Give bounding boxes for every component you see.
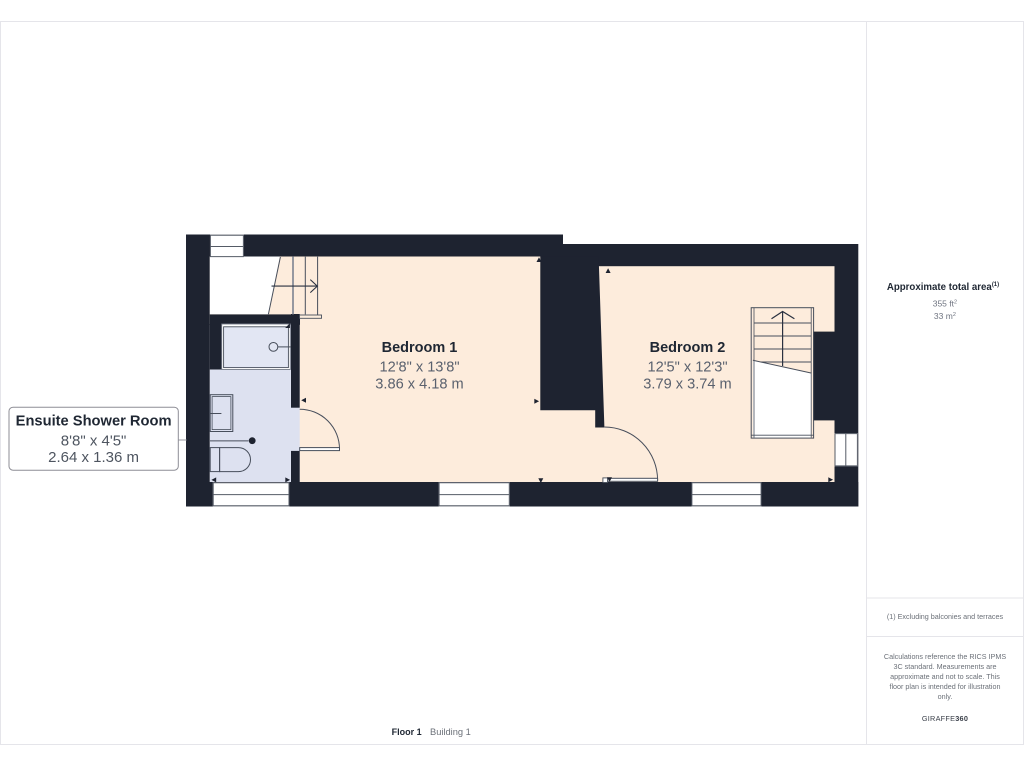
svg-text:floor plan is intended for ill: floor plan is intended for illustration bbox=[889, 682, 1000, 691]
svg-text:33 m2: 33 m2 bbox=[934, 311, 956, 321]
svg-text:GIRAFFE360: GIRAFFE360 bbox=[922, 714, 968, 723]
svg-text:Bedroom 2: Bedroom 2 bbox=[650, 340, 726, 356]
svg-text:12'8" x 13'8": 12'8" x 13'8" bbox=[379, 360, 459, 376]
svg-text:Ensuite Shower Room: Ensuite Shower Room bbox=[16, 414, 172, 430]
svg-text:Building 1: Building 1 bbox=[430, 727, 471, 737]
svg-text:approximate and not to scale.: approximate and not to scale. This bbox=[890, 672, 1000, 681]
svg-text:(1) Excluding balconies and te: (1) Excluding balconies and terraces bbox=[887, 612, 1004, 621]
svg-text:3.79 x 3.74 m: 3.79 x 3.74 m bbox=[643, 377, 731, 393]
svg-text:3C standard. Measurements are: 3C standard. Measurements are bbox=[893, 662, 996, 671]
svg-text:Approximate total area(1): Approximate total area(1) bbox=[887, 282, 999, 293]
svg-text:8'8" x 4'5": 8'8" x 4'5" bbox=[61, 433, 127, 450]
svg-text:2.64 x 1.36 m: 2.64 x 1.36 m bbox=[48, 449, 139, 466]
svg-text:Floor 1: Floor 1 bbox=[392, 727, 422, 737]
svg-text:12'5" x 12'3": 12'5" x 12'3" bbox=[647, 360, 727, 376]
svg-text:355 ft2: 355 ft2 bbox=[933, 299, 957, 309]
svg-text:only.: only. bbox=[938, 692, 953, 701]
svg-text:3.86 x 4.18 m: 3.86 x 4.18 m bbox=[375, 377, 463, 393]
svg-text:Calculations reference the RIC: Calculations reference the RICS IPMS bbox=[884, 652, 1006, 661]
svg-text:Bedroom 1: Bedroom 1 bbox=[382, 340, 458, 356]
